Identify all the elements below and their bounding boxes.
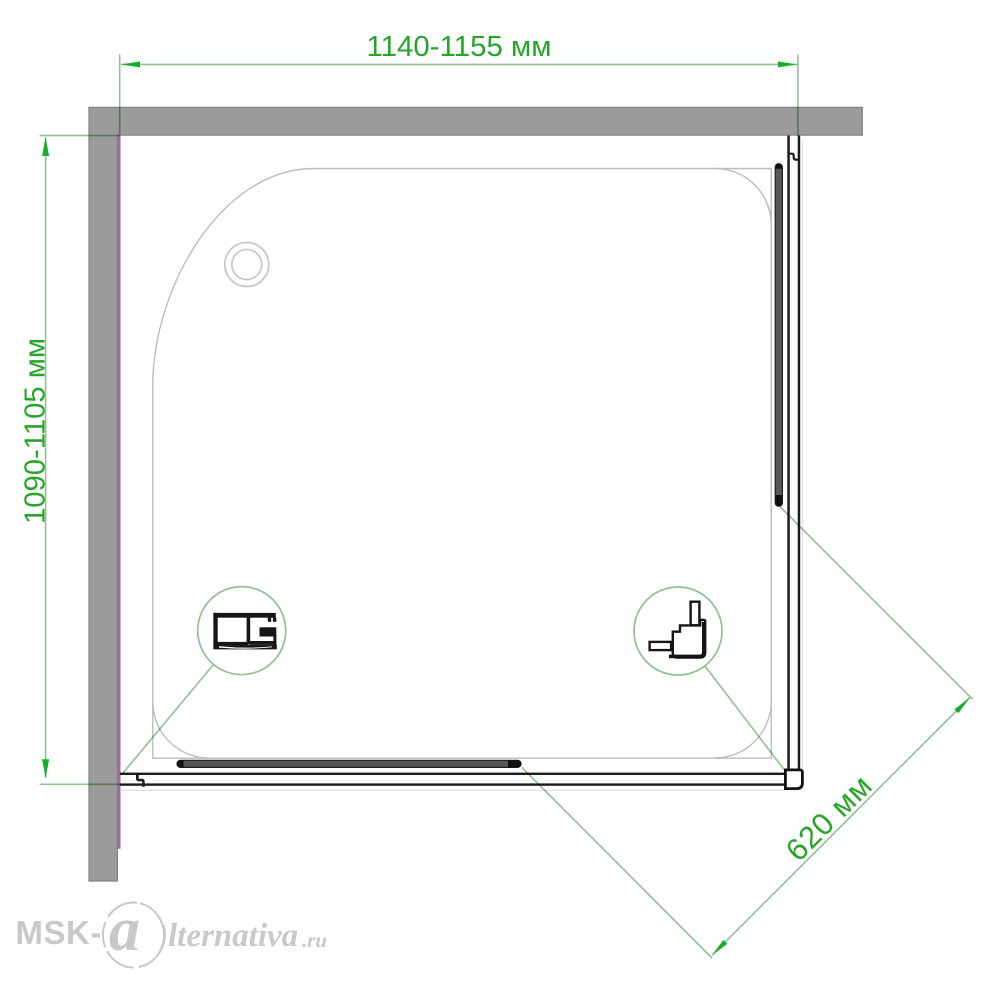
svg-text:a: a <box>109 896 140 964</box>
svg-text:1090-1105 мм: 1090-1105 мм <box>20 338 52 524</box>
svg-text:.ru: .ru <box>302 928 327 952</box>
svg-text:1140-1155 мм: 1140-1155 мм <box>367 31 552 63</box>
svg-text:MSK-: MSK- <box>16 914 102 951</box>
svg-text:lternativa: lternativa <box>168 918 298 954</box>
